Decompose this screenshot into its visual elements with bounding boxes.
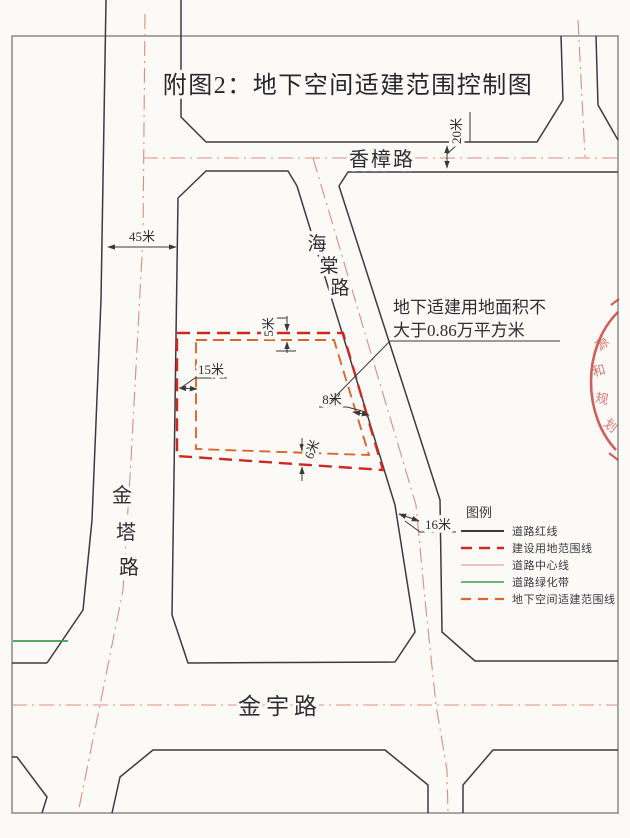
dim-label-5m: 5米: [261, 317, 276, 337]
figure-title: 附图2：地下空间适建范围控制图: [163, 72, 534, 99]
dimension-6m: 6米: [301, 437, 322, 481]
approval-stamp: 源 和 规 划: [591, 299, 621, 460]
southwest-block-outline: [12, 757, 47, 813]
dim-arrow: [179, 388, 197, 389]
svg-text:道路中心线: 道路中心线: [512, 558, 570, 572]
legend: 图例 道路红线 建设用地范围线 道路中心线 道路绿化带 地下空间适建范围线: [461, 505, 616, 606]
legend-item-construction-boundary: 建设用地范围线: [461, 541, 593, 555]
legend-item-greenbelt: 道路绿化带: [461, 575, 570, 589]
dimension-45m: 45米: [108, 229, 176, 247]
svg-text:道路绿化带: 道路绿化带: [512, 575, 570, 589]
svg-text:金: 金: [112, 484, 134, 507]
plan-drawing-page: 附图2：地下空间适建范围控制图 香樟路 海 棠 路 金 塔 路 金宇路 20米 …: [0, 0, 630, 838]
dimension-20m: 20米: [447, 112, 470, 168]
construction-land-boundary: [177, 333, 383, 470]
haitang-north-centerline: [578, 20, 585, 157]
dim-leader: [182, 378, 227, 387]
road-label-jinyu: 金宇路: [238, 694, 322, 719]
annotation-line2: 大于0.86万平方米: [393, 321, 525, 340]
legend-item-underground-range: 地下空间适建范围线: [461, 592, 616, 606]
legend-title: 图例: [466, 505, 492, 520]
dim-label-20m: 20米: [449, 118, 464, 144]
svg-text:路: 路: [330, 277, 349, 299]
annotation-line1: 地下适建用地面积不: [393, 298, 546, 317]
svg-text:塔: 塔: [116, 521, 138, 544]
dimension-16m: 16米: [399, 514, 456, 532]
annotation-leader: [331, 341, 560, 401]
dim-label-6m: 6米: [301, 437, 322, 461]
svg-text:道路红线: 道路红线: [512, 524, 558, 538]
dimension-5m: 5米: [261, 316, 296, 353]
dim-label-16m: 16米: [425, 517, 451, 532]
svg-text:建设用地范围线: 建设用地范围线: [512, 541, 593, 555]
road-label-xiangzhang: 香樟路: [349, 148, 415, 171]
jinta-west-edge: [47, 0, 106, 663]
north-block-outline: [181, 0, 563, 142]
dim-label-15m: 15米: [198, 362, 224, 377]
jinta-centerline: [78, 14, 145, 813]
dim-arrow: [399, 514, 419, 521]
southeast-block-outline: [463, 750, 618, 813]
svg-text:地下空间适建范围线: 地下空间适建范围线: [512, 592, 616, 606]
svg-text:海: 海: [307, 233, 326, 255]
legend-item-centerline: 道路中心线: [461, 558, 570, 572]
road-label-jinta: 金 塔 路: [112, 484, 141, 579]
area-annotation: 地下适建用地面积不 大于0.86万平方米: [331, 298, 560, 401]
stamp-char: 和: [591, 362, 607, 380]
dimension-15m: 15米: [179, 362, 227, 389]
dim-leader: [319, 407, 366, 412]
east-block-outline: [339, 172, 618, 661]
stamp-char: 规: [594, 390, 610, 407]
south-middle-block-outline: [112, 750, 428, 813]
map-canvas: 附图2：地下空间适建范围控制图 香樟路 海 棠 路 金 塔 路 金宇路 20米 …: [0, 0, 630, 838]
underground-range-boundary: [196, 340, 369, 455]
svg-text:路: 路: [119, 556, 141, 579]
svg-text:棠: 棠: [319, 255, 338, 277]
dim-label-45m: 45米: [129, 229, 155, 244]
haitang-north-east-edge: [596, 36, 618, 140]
legend-item-road-redline: 道路红线: [461, 524, 558, 538]
parcel-block-outline: [172, 171, 415, 663]
